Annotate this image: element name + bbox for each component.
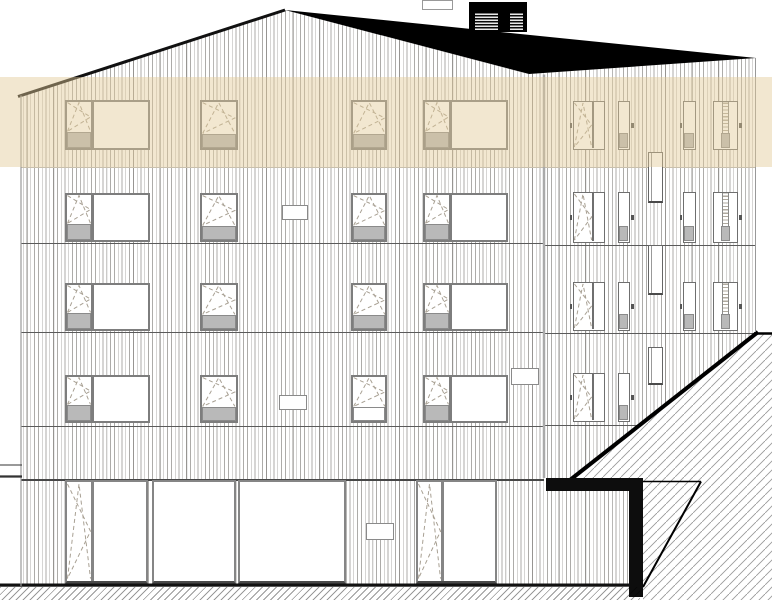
- elevation-canvas: [0, 0, 772, 600]
- roof-plane: [285, 10, 756, 74]
- adjacent-roof-hatch: [572, 333, 772, 600]
- support-post: [629, 478, 643, 597]
- ground-hatch: [0, 587, 640, 600]
- canopy-beam: [546, 478, 640, 491]
- highlight-band: [0, 77, 772, 167]
